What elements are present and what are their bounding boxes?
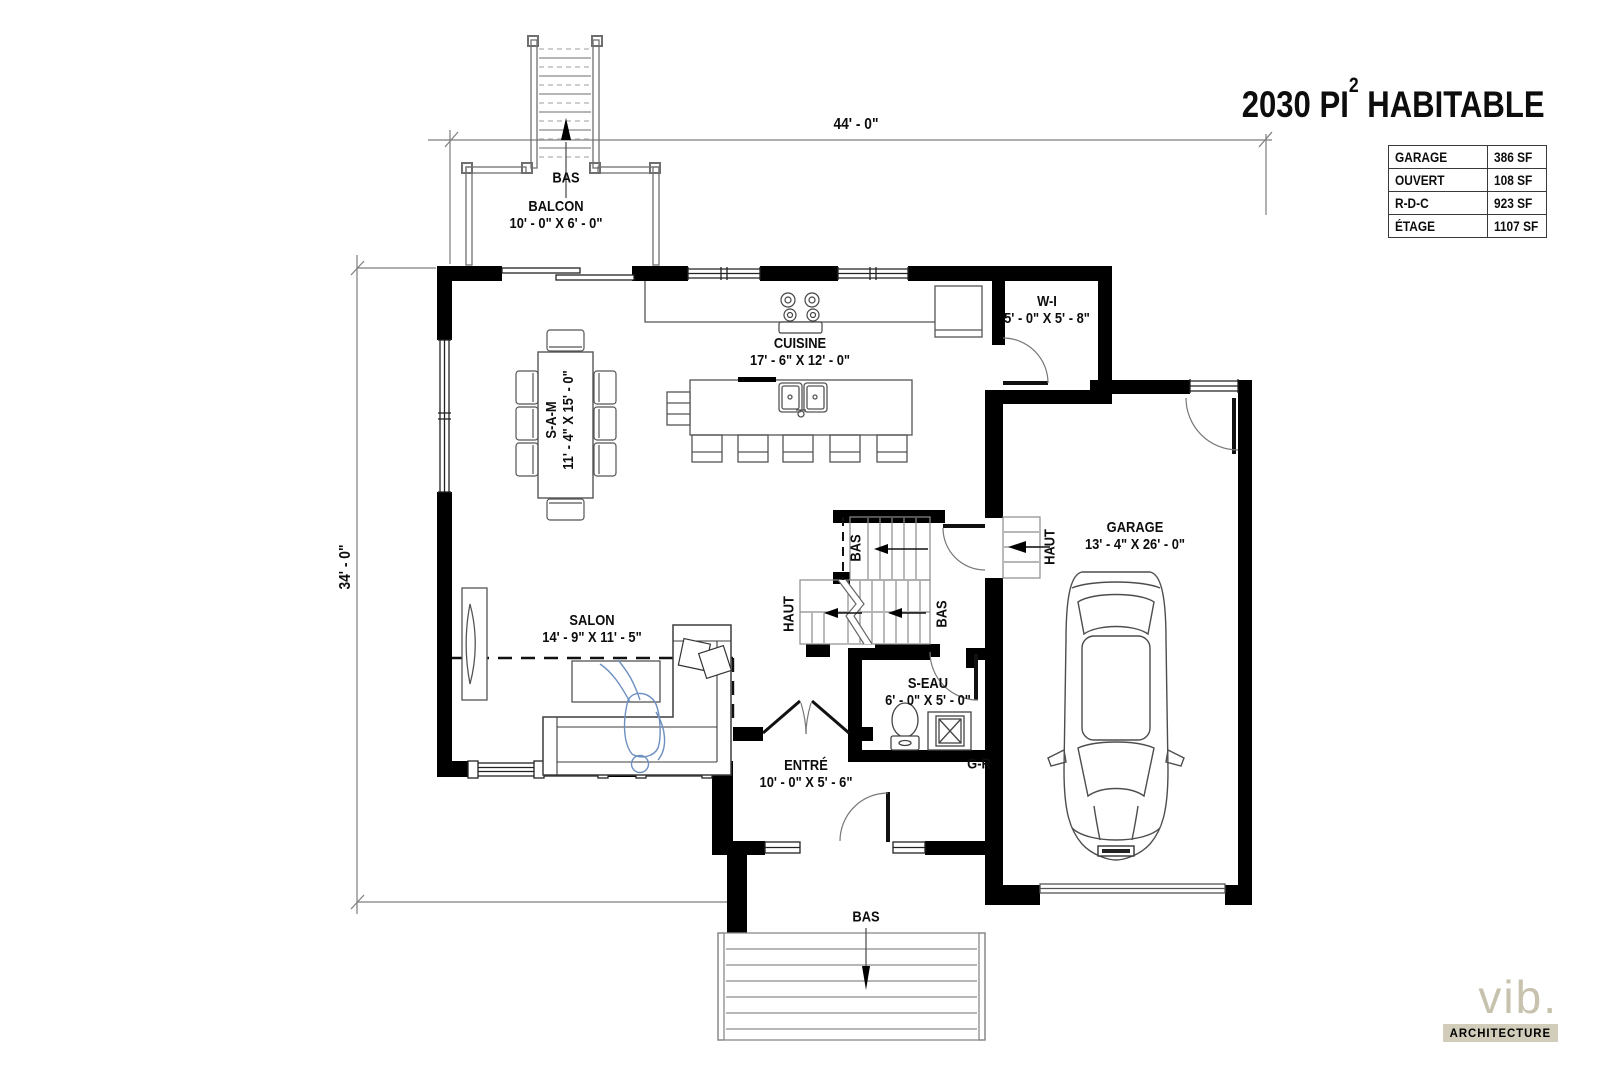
title-suffix: HABITABLE bbox=[1359, 84, 1545, 125]
table-value-cell: 1107 SF bbox=[1488, 215, 1546, 237]
room-dims-cuisine: 17' - 6" X 12' - 0" bbox=[750, 353, 850, 370]
room-name-seau: S-EAU bbox=[885, 676, 971, 693]
island-stools bbox=[692, 435, 907, 462]
room-label-sam: S-A-M 11' - 4" X 15' - 0" bbox=[544, 370, 578, 469]
stair-label-garage-haut: HAUT bbox=[1043, 529, 1060, 565]
room-label-walk-in: W-I 5' - 0" X 5' - 8" bbox=[1004, 294, 1090, 328]
vanity-sink bbox=[928, 712, 971, 750]
area-summary-table: GARAGE 386 SF OUVERT 108 SF R-D-C 923 SF… bbox=[1388, 145, 1547, 238]
car bbox=[1048, 572, 1184, 860]
room-label-balcon: BALCON 10' - 0" X 6' - 0" bbox=[510, 199, 603, 233]
room-name-entree: ENTRÉ bbox=[760, 758, 853, 775]
room-label-cuisine: CUISINE 17' - 6" X 12' - 0" bbox=[750, 336, 850, 370]
room-name-cuisine: CUISINE bbox=[750, 336, 850, 353]
toilet bbox=[891, 703, 919, 750]
area-label: ÉTAGE bbox=[1395, 219, 1435, 234]
table-row: ÉTAGE 1107 SF bbox=[1389, 214, 1546, 237]
room-label-garde-robe: G-R bbox=[967, 757, 991, 774]
room-dims-walk-in: 5' - 0" X 5' - 8" bbox=[1004, 311, 1090, 328]
table-label-cell: R-D-C bbox=[1389, 192, 1488, 214]
firm-logo: vib. ARCHITECTURE bbox=[1437, 974, 1558, 1042]
room-name-balcon: BALCON bbox=[510, 199, 603, 216]
room-name-salon: SALON bbox=[542, 613, 641, 630]
room-dims-balcon: 10' - 0" X 6' - 0" bbox=[510, 216, 603, 233]
garage-door bbox=[1040, 884, 1225, 893]
area-label: OUVERT bbox=[1395, 173, 1445, 188]
table-row: OUVERT 108 SF bbox=[1389, 168, 1546, 191]
table-value-cell: 923 SF bbox=[1488, 192, 1546, 214]
table-label-cell: OUVERT bbox=[1389, 169, 1488, 191]
room-dims-salon: 14' - 9" X 11' - 5" bbox=[542, 630, 641, 647]
area-label: GARAGE bbox=[1395, 150, 1447, 165]
stair-label-balcony-bas: BAS bbox=[552, 171, 579, 188]
table-row: R-D-C 923 SF bbox=[1389, 191, 1546, 214]
dimension-left: 34' - 0" bbox=[337, 545, 355, 590]
table-value-cell: 386 SF bbox=[1488, 146, 1546, 168]
room-label-garage: GARAGE 13' - 4" X 26' - 0" bbox=[1085, 520, 1185, 554]
stair-label-mid-haut: HAUT bbox=[782, 596, 799, 632]
page-title: 2030 PI2 HABITABLE bbox=[1242, 84, 1545, 126]
entry-stairs bbox=[718, 928, 985, 1040]
area-value: 923 SF bbox=[1494, 196, 1532, 211]
cooktop bbox=[779, 293, 822, 333]
room-dims-entree: 10' - 0" X 5' - 6" bbox=[760, 775, 853, 792]
room-dims-seau: 6' - 0" X 5' - 0" bbox=[885, 693, 971, 710]
kitchen-island bbox=[667, 377, 912, 462]
room-label-entree: ENTRÉ 10' - 0" X 5' - 6" bbox=[760, 758, 853, 792]
area-label: R-D-C bbox=[1395, 196, 1429, 211]
room-dims-garage: 13' - 4" X 26' - 0" bbox=[1085, 537, 1185, 554]
room-name-sam: S-A-M bbox=[544, 370, 561, 469]
area-value: 1107 SF bbox=[1494, 219, 1538, 234]
logo-subtitle-badge: ARCHITECTURE bbox=[1443, 1024, 1558, 1042]
title-prefix: 2030 PI bbox=[1242, 84, 1349, 125]
room-label-salon: SALON 14' - 9" X 11' - 5" bbox=[542, 613, 641, 647]
table-label-cell: ÉTAGE bbox=[1389, 215, 1488, 237]
room-label-seau: S-EAU 6' - 0" X 5' - 0" bbox=[885, 676, 971, 710]
coffee-table bbox=[572, 661, 660, 702]
table-row: GARAGE 386 SF bbox=[1389, 146, 1546, 168]
logo-wordmark: vib. bbox=[1437, 974, 1558, 1020]
title-superscript: 2 bbox=[1349, 74, 1359, 97]
floor-plan-page: BAS BALCON 10' - 0" X 6' - 0" 44' - 0" 3… bbox=[0, 0, 1600, 1080]
stair-label-mid-bas-2: BAS bbox=[935, 600, 952, 627]
tv-console bbox=[462, 588, 487, 700]
room-dims-sam: 11' - 4" X 15' - 0" bbox=[561, 370, 578, 469]
room-name-walk-in: W-I bbox=[1004, 294, 1090, 311]
area-value: 108 SF bbox=[1494, 173, 1532, 188]
floor-plan-drawing bbox=[0, 0, 1600, 1080]
area-value: 386 SF bbox=[1494, 150, 1532, 165]
room-name-garage: GARAGE bbox=[1085, 520, 1185, 537]
dimension-top: 44' - 0" bbox=[834, 116, 879, 134]
table-value-cell: 108 SF bbox=[1488, 169, 1546, 191]
table-label-cell: GARAGE bbox=[1389, 146, 1488, 168]
stair-label-mid-bas: BAS bbox=[849, 534, 866, 561]
stair-label-entry-bas: BAS bbox=[852, 910, 879, 927]
